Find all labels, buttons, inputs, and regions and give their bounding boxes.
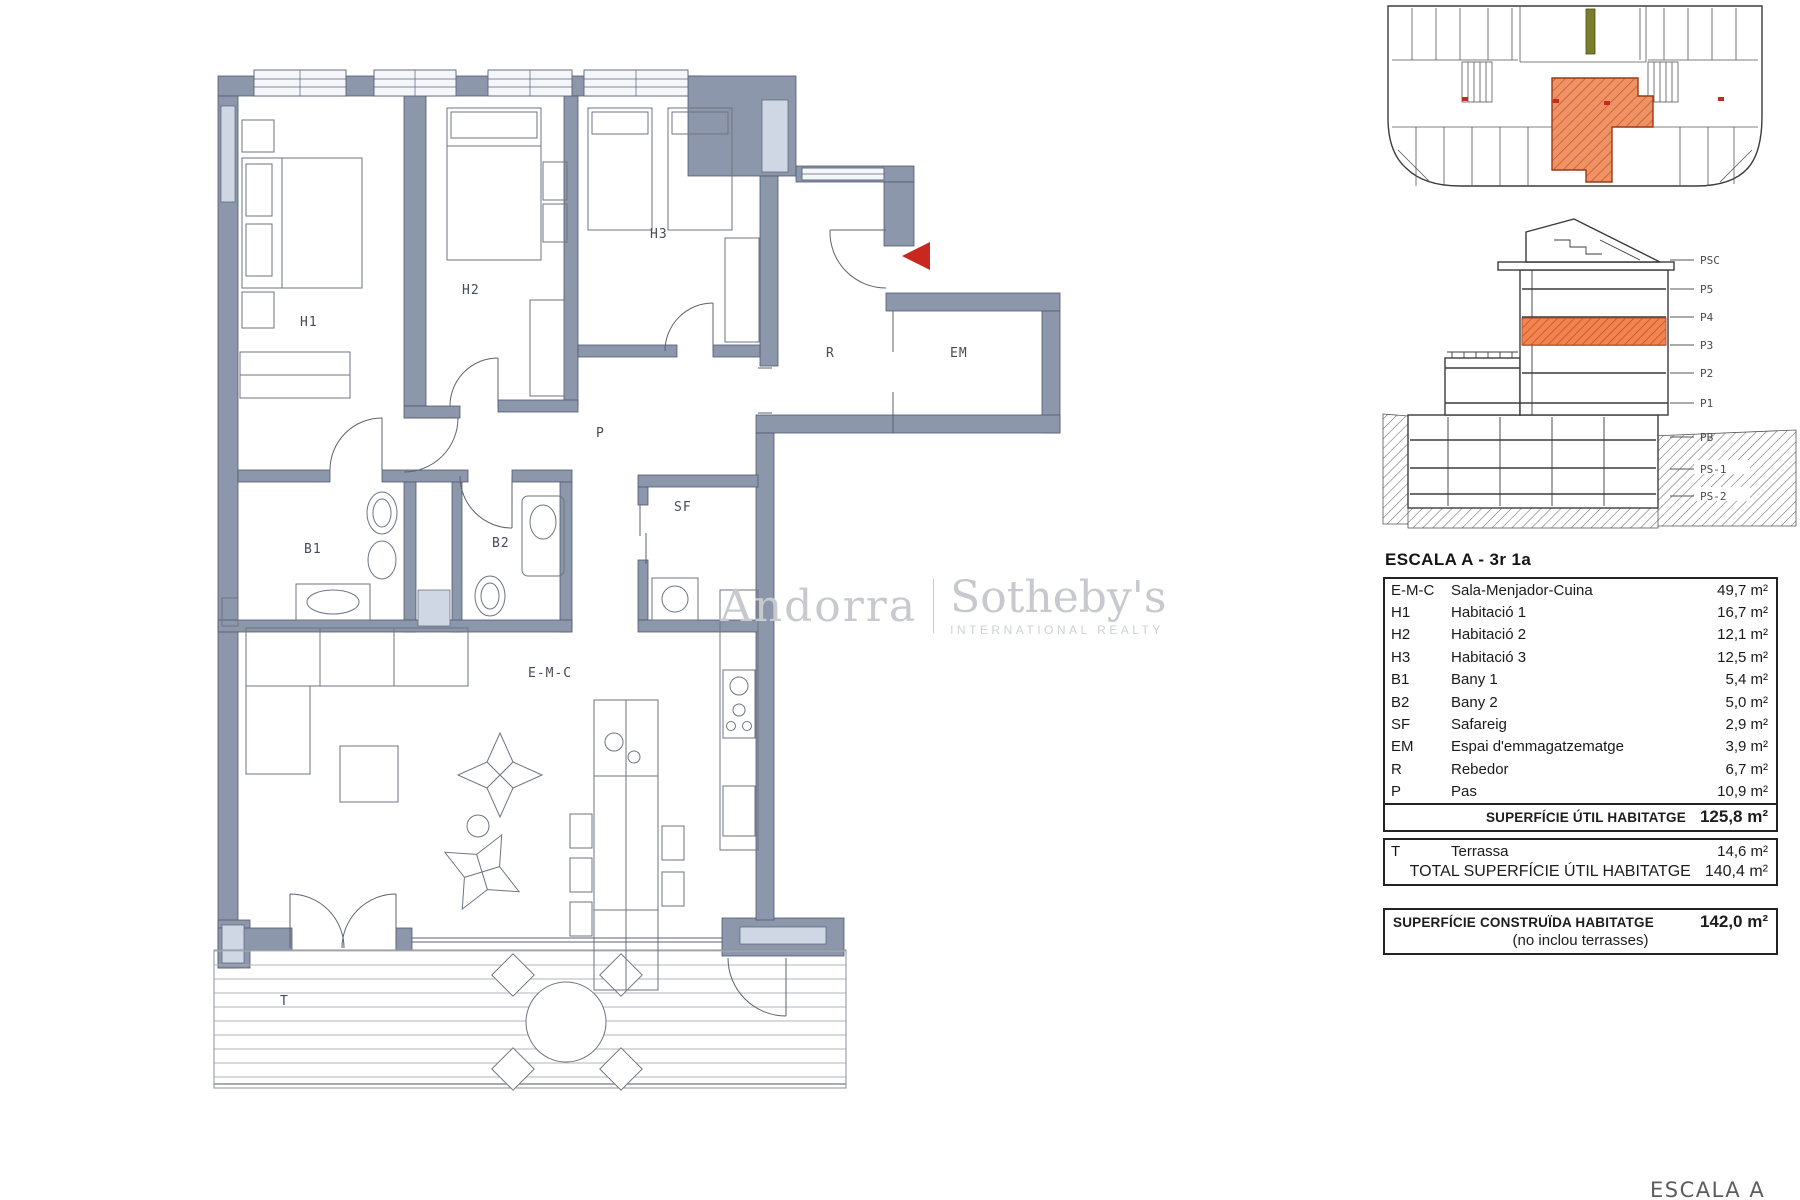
building-section: PSC P5 P4 P3 P2 P1 PB PS-1 PS-2 xyxy=(1378,208,1800,552)
building-key-plan xyxy=(1378,0,1778,200)
area-row: P Pas 10,9 m² xyxy=(1385,781,1776,803)
floor-label-p5: P5 xyxy=(1700,283,1713,296)
row-area: 14,6 m² xyxy=(1717,843,1768,860)
area-row: H3 Habitació 3 12,5 m² xyxy=(1385,646,1776,668)
room-label-sf: SF xyxy=(674,500,692,515)
subtotal-row: SUPERFÍCIE ÚTIL HABITATGE 125,8 m² xyxy=(1385,803,1776,830)
room-label-r: R xyxy=(826,346,835,361)
row-name: Bany 2 xyxy=(1451,694,1725,711)
row-name: Pas xyxy=(1451,783,1717,800)
room-label-h2: H2 xyxy=(462,283,480,298)
room-label-h1: H1 xyxy=(300,315,318,330)
escala-footer-label: ESCALA A xyxy=(1650,1178,1765,1200)
section-base xyxy=(1408,415,1658,508)
terrace-deck xyxy=(214,950,846,1090)
floor-label-pb: PB xyxy=(1700,431,1714,444)
row-code: H1 xyxy=(1391,604,1451,621)
scanned-floorplan-page: H1 H2 H3 R EM P B1 B2 SF E-M-C T Andorra… xyxy=(0,0,1800,1200)
area-table-main-box: E-M-C Sala-Menjador-Cuina 49,7 m² H1 Hab… xyxy=(1383,577,1778,832)
watermark-brand-left: Andorra xyxy=(720,581,917,632)
floor-label-ps2: PS-2 xyxy=(1700,490,1727,503)
built-label: SUPERFÍCIE CONSTRUÏDA HABITATGE xyxy=(1393,915,1654,930)
area-row: EM Espai d'emmagatzematge 3,9 m² xyxy=(1385,736,1776,758)
row-code: EM xyxy=(1391,738,1451,755)
row-code: B2 xyxy=(1391,694,1451,711)
row-name: Habitació 3 xyxy=(1451,649,1717,666)
row-name: Habitació 2 xyxy=(1451,626,1717,643)
floor-label-p3: P3 xyxy=(1700,339,1713,352)
built-note: (no inclou terrasses) xyxy=(1393,932,1768,949)
section-highlighted-floor xyxy=(1522,318,1666,345)
area-row: H1 Habitació 1 16,7 m² xyxy=(1385,601,1776,623)
area-row: B2 Bany 2 5,0 m² xyxy=(1385,691,1776,713)
row-area: 49,7 m² xyxy=(1717,582,1768,599)
row-area: 5,0 m² xyxy=(1725,694,1768,711)
floor-label-psc: PSC xyxy=(1700,254,1720,267)
row-code: SF xyxy=(1391,716,1451,733)
row-area: 12,1 m² xyxy=(1717,626,1768,643)
row-name: Habitació 1 xyxy=(1451,604,1717,621)
area-row: R Rebedor 6,7 m² xyxy=(1385,758,1776,780)
subtotal-value: 125,8 m² xyxy=(1700,807,1768,827)
room-label-b2: B2 xyxy=(492,536,510,551)
room-label-h3: H3 xyxy=(650,227,668,242)
row-area: 3,9 m² xyxy=(1725,738,1768,755)
row-name: Sala-Menjador-Cuina xyxy=(1451,582,1717,599)
plan-walls xyxy=(218,76,1060,968)
key-plan-green-marker xyxy=(1586,9,1595,54)
total-value: 140,4 m² xyxy=(1705,863,1768,881)
row-name: Bany 1 xyxy=(1451,671,1725,688)
area-table-rows: E-M-C Sala-Menjador-Cuina 49,7 m² H1 Hab… xyxy=(1385,579,1776,803)
area-row: B1 Bany 1 5,4 m² xyxy=(1385,669,1776,691)
row-code: H3 xyxy=(1391,649,1451,666)
floor-label-p1: P1 xyxy=(1700,397,1713,410)
plan-furniture xyxy=(222,108,759,990)
watermark-divider xyxy=(933,579,934,633)
total-label: TOTAL SUPERFÍCIE ÚTIL HABITATGE xyxy=(1410,863,1691,881)
row-code: T xyxy=(1391,843,1451,860)
area-table: E-M-C Sala-Menjador-Cuina 49,7 m² H1 Hab… xyxy=(1383,577,1778,955)
row-name: Espai d'emmagatzematge xyxy=(1451,738,1725,755)
area-table-terrace-box: T Terrassa 14,6 m² TOTAL SUPERFÍCIE ÚTIL… xyxy=(1383,838,1778,886)
watermark-brand-right: Sotheby's xyxy=(950,576,1166,620)
row-area: 6,7 m² xyxy=(1725,761,1768,778)
built-area-box: SUPERFÍCIE CONSTRUÏDA HABITATGE 142,0 m²… xyxy=(1383,908,1778,955)
room-label-em: EM xyxy=(950,346,968,361)
row-code: R xyxy=(1391,761,1451,778)
row-area: 16,7 m² xyxy=(1717,604,1768,621)
floor-label-p2: P2 xyxy=(1700,367,1713,380)
row-name: Terrassa xyxy=(1451,843,1717,860)
row-area: 12,5 m² xyxy=(1717,649,1768,666)
row-code: E-M-C xyxy=(1391,582,1451,599)
area-row: E-M-C Sala-Menjador-Cuina 49,7 m² xyxy=(1385,579,1776,601)
row-code: H2 xyxy=(1391,626,1451,643)
total-row: TOTAL SUPERFÍCIE ÚTIL HABITATGE 140,4 m² xyxy=(1385,862,1776,884)
floor-label-p4: P4 xyxy=(1700,311,1714,324)
room-label-p: P xyxy=(596,426,605,441)
row-area: 5,4 m² xyxy=(1725,671,1768,688)
plan-shafts xyxy=(221,100,826,963)
row-area: 10,9 m² xyxy=(1717,783,1768,800)
room-label-emc: E-M-C xyxy=(528,666,572,681)
room-label-b1: B1 xyxy=(304,542,322,557)
row-name: Safareig xyxy=(1451,716,1725,733)
area-row: SF Safareig 2,9 m² xyxy=(1385,713,1776,735)
terrace-row: T Terrassa 14,6 m² xyxy=(1385,840,1776,862)
area-table-title: ESCALA A - 3r 1a xyxy=(1385,550,1531,570)
area-row: H2 Habitació 2 12,1 m² xyxy=(1385,624,1776,646)
row-code: B1 xyxy=(1391,671,1451,688)
floor-label-ps1: PS-1 xyxy=(1700,463,1727,476)
row-area: 2,9 m² xyxy=(1725,716,1768,733)
watermark-brand-sub: INTERNATIONAL REALTY xyxy=(950,624,1166,636)
watermark: Andorra Sotheby's INTERNATIONAL REALTY xyxy=(720,576,1166,636)
subtotal-label: SUPERFÍCIE ÚTIL HABITATGE xyxy=(1486,810,1686,825)
section-terrace-block xyxy=(1445,352,1520,415)
row-code: P xyxy=(1391,783,1451,800)
row-name: Rebedor xyxy=(1451,761,1725,778)
built-value: 142,0 m² xyxy=(1700,912,1768,932)
room-label-t: T xyxy=(280,994,289,1009)
